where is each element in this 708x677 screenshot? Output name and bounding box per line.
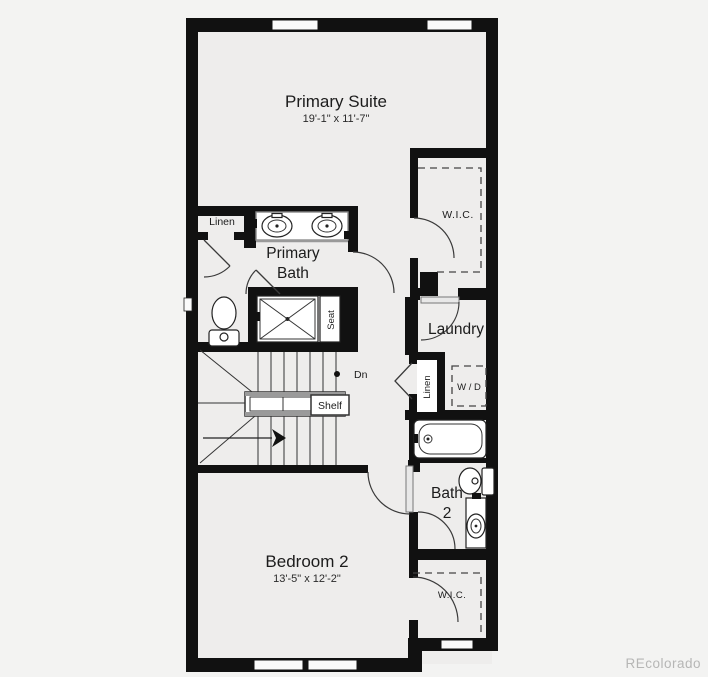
window: [441, 640, 473, 649]
label-washer-dryer: W / D: [457, 382, 481, 393]
room-label-bath2-2: 2: [443, 505, 452, 522]
window: [308, 660, 357, 670]
room-label-laundry: Laundry: [428, 321, 484, 338]
window: [254, 660, 303, 670]
laundry-door-leaf: [421, 297, 459, 303]
room-dims-primary-suite: 19'-1" x 11'-7": [303, 113, 370, 125]
floorplan-drawing: Primary Suite 19'-1" x 11'-7" W.I.C. Lin…: [0, 0, 708, 677]
shower-icon: [255, 296, 318, 342]
room-label-bedroom2: Bedroom 2: [265, 552, 348, 571]
label-linen-laundry: Linen: [422, 375, 433, 398]
room-label-primary-bath-1: Primary: [266, 245, 320, 262]
window: [272, 20, 318, 30]
toilet-icon: [209, 297, 239, 346]
bathtub-icon: [414, 420, 486, 458]
window: [427, 20, 472, 30]
down-marker-dot: [334, 371, 340, 377]
toilet-icon: [459, 468, 494, 495]
vanity-sink-icon: [466, 493, 486, 548]
label-shelf: Shelf: [318, 400, 342, 412]
room-label-wic-bottom: W.I.C.: [438, 590, 466, 601]
room-label-bath2-1: Bath: [431, 485, 463, 502]
label-linen-top: Linen: [209, 216, 235, 228]
watermark-text: REcolorado: [625, 656, 701, 671]
bedroom2-door-leaf: [406, 466, 413, 512]
floorplan-page: Primary Suite 19'-1" x 11'-7" W.I.C. Lin…: [0, 0, 708, 677]
shower-head-icon: [255, 312, 260, 321]
label-down: Dn: [354, 369, 368, 381]
room-dims-bedroom2: 13'-5" x 12'-2": [273, 573, 341, 585]
room-label-primary-suite: Primary Suite: [285, 92, 387, 111]
wall-opening: [184, 298, 192, 311]
room-label-wic-top: W.I.C.: [442, 209, 474, 221]
room-label-primary-bath-2: Bath: [277, 265, 309, 282]
label-seat: Seat: [326, 310, 337, 330]
